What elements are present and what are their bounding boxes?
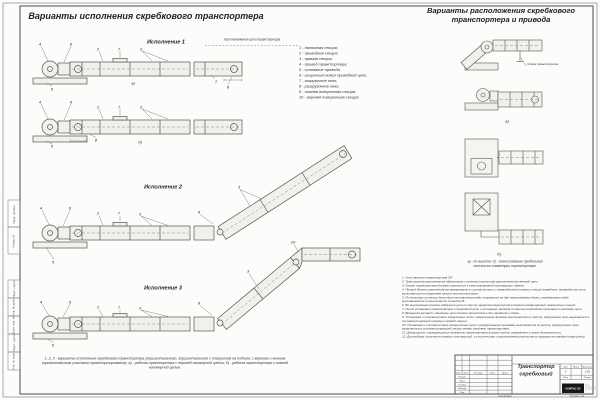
stamp-row-prov: Пров.: [459, 379, 465, 382]
stamp-doc-title-line2: скребковый: [519, 371, 552, 377]
stamp-scale-value: 1:20: [585, 370, 590, 373]
stamp-header-mass: Масса: [573, 365, 579, 368]
frame-box-vzam-inv: Взам. инв. №: [8, 316, 20, 334]
exec3-label: Исполнение 3: [113, 285, 213, 291]
page-title-right-line1: Варианты расположения скребкового: [410, 6, 592, 15]
footer-format-label: Формат А1: [570, 395, 585, 398]
title-block: Изм. Лист № докум. Подп. Дата Разраб. Пр…: [455, 355, 593, 394]
footer-copied-label: Копировал: [498, 395, 511, 398]
parts-legend: 1 - натяжная секция;2 - приводная секция…: [299, 45, 429, 100]
page-title-left: Варианты исполнения скребкового транспор…: [26, 11, 266, 21]
note-line: 9. Установка и соответствие загрузочных …: [402, 316, 591, 324]
stamp-header-scale: Масштаб: [582, 365, 592, 368]
exec1-label: Исполнение 1: [116, 39, 216, 45]
frame-box-perv-primen: Перв. примен.: [8, 200, 20, 227]
legend-item: 10 - верхняя поворотная секция;: [299, 95, 429, 101]
placement-variant-b2-drawing: [465, 193, 543, 244]
sheet-footer: Копировал Формат А1: [400, 393, 600, 400]
stamp-doc-title-line1: Транспортер: [517, 364, 554, 370]
frame-box-podp-data-1: Подп. и дата: [8, 280, 20, 298]
stamp-header-doc: № докум.: [474, 371, 483, 374]
stamp-header-list: Лист: [463, 371, 468, 374]
stamp-row-tkontr: Т.контр.: [458, 383, 466, 386]
frame-box-podp-data-2: Подп. и дата: [8, 334, 20, 352]
stamp-header-izm: Изм.: [456, 371, 460, 374]
caption-right: а) - по высоте; б) - относительно продол…: [425, 260, 585, 269]
frame-box-inv-podl: Инв. № подл.: [8, 352, 20, 370]
exec2-drawing: [33, 146, 352, 248]
placement-variant-b1-drawing: [465, 139, 543, 177]
page-title-right-line2: транспортера и привода: [410, 15, 592, 24]
frame-box-inv-dubl: Инв. № дубл.: [8, 298, 20, 316]
frame-box-sprav: Справ. №: [8, 227, 20, 254]
exec3-drawing: [33, 248, 360, 339]
stamp-header-data: Дата: [502, 371, 508, 374]
stamp-row-nkontr: Н.контр.: [458, 387, 467, 390]
exec1-view-a-drawing: [33, 59, 242, 85]
load-window: [113, 59, 127, 63]
caption-left: 1, 2, 3 - варианты исполнения скребковог…: [40, 356, 290, 370]
stamp-header-podp: Подп.: [490, 371, 496, 374]
drive-base: [33, 78, 87, 84]
stamp-liter-value: У: [565, 370, 567, 373]
caption-right-line2: плоскости симметрии транспортера.: [425, 264, 585, 268]
kompas-logo-text: КОМПАС-3D: [565, 387, 580, 390]
exec1-view-b-drawing: [33, 117, 242, 143]
note-line: 5. По монтажу по месту болтовые неподвиж…: [402, 296, 591, 304]
note-line: 4. Привод (болты крепления) устанавливат…: [402, 288, 591, 296]
drive-gearbox: [58, 63, 70, 75]
stamp-header-lit: Лит.: [563, 365, 568, 368]
exec2-details: [42, 152, 348, 260]
note-line: 10. Установка и соответствие разгрузочны…: [402, 323, 591, 331]
stamp-sheets-label: Листов: [584, 376, 591, 378]
stamp-sheet-label: Лист: [563, 376, 568, 378]
incline-section: [218, 146, 352, 240]
conveyor-support-label: Опора транспортера: [527, 63, 577, 66]
technical-notes: 1. Угол наклона транспортера 30°.2. Тран…: [402, 276, 591, 339]
placement-variant-a2-drawing: [465, 89, 542, 111]
tension-unit-label: Узел натяжения цепи транспортера: [203, 38, 301, 42]
exec2-label: Исполнение 2: [113, 184, 213, 190]
note-line: 12. Для выбора и расчета опорных констру…: [402, 335, 591, 339]
right-panel-details: [495, 46, 541, 238]
page-title-right: Варианты расположения скребкового трансп…: [410, 6, 592, 24]
stamp-row-razrab: Разраб.: [458, 375, 466, 378]
drawing-sheet: Варианты исполнения скребкового транспор…: [0, 0, 600, 400]
kompas-side-text: Не для коммерческого использования: [585, 384, 600, 390]
